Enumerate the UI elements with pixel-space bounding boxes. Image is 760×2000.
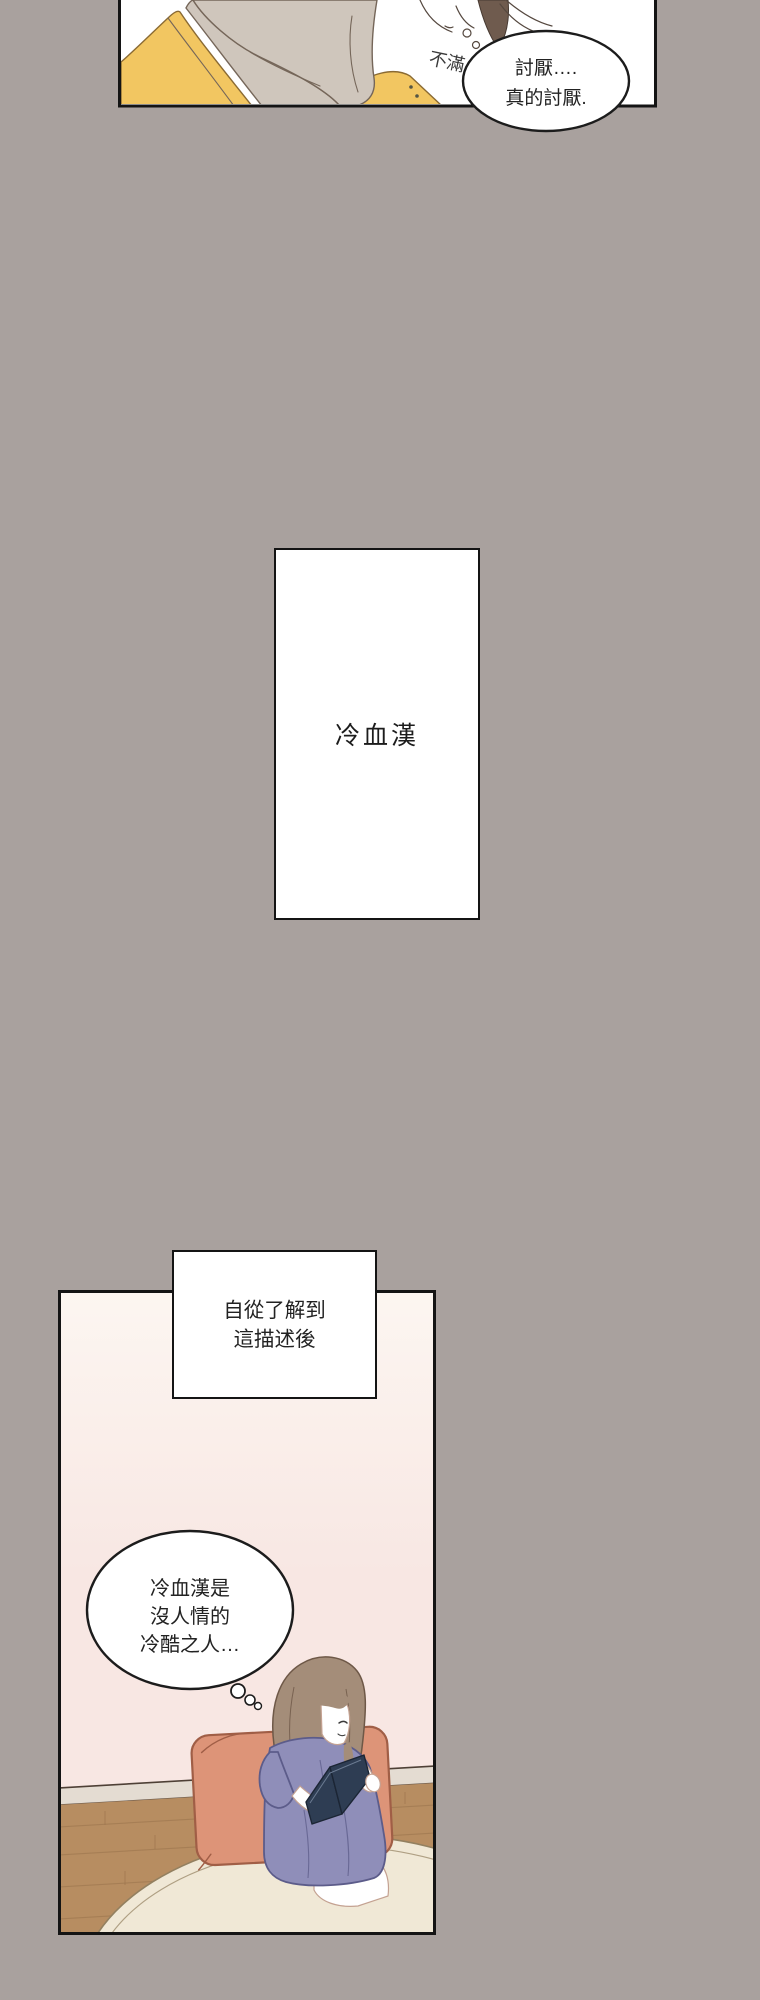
- thought-line-2: 沒人情的: [150, 1605, 230, 1628]
- speech-line-2: 真的討厭.: [505, 87, 586, 109]
- thought-line-1: 冷血漢是: [150, 1577, 230, 1600]
- caption-box: 自從了解到 這描述後: [172, 1250, 377, 1399]
- thought-tail-2: [245, 1695, 255, 1705]
- thought-tail-3: [255, 1703, 262, 1710]
- title-text: 冷血漢: [335, 716, 419, 752]
- speech-line-1: 討厭….: [515, 57, 577, 79]
- comic-page: 不滿 討厭…. 真的討厭. 冷血漢 自從了解到 這描述後: [0, 0, 760, 2000]
- panel-top: 不滿 討厭…. 真的討厭.: [100, 0, 680, 145]
- speech-bubble: 討厭…. 真的討厭.: [463, 31, 629, 131]
- thought-line-3: 冷酷之人…: [140, 1633, 240, 1656]
- hair-bead: [473, 42, 480, 49]
- thought-tail-1: [231, 1684, 245, 1698]
- caption-line-1: 自從了解到: [223, 1296, 326, 1325]
- caption-line-2: 這描述後: [234, 1325, 316, 1354]
- hair-bead: [463, 29, 471, 37]
- title-panel: 冷血漢: [274, 548, 480, 920]
